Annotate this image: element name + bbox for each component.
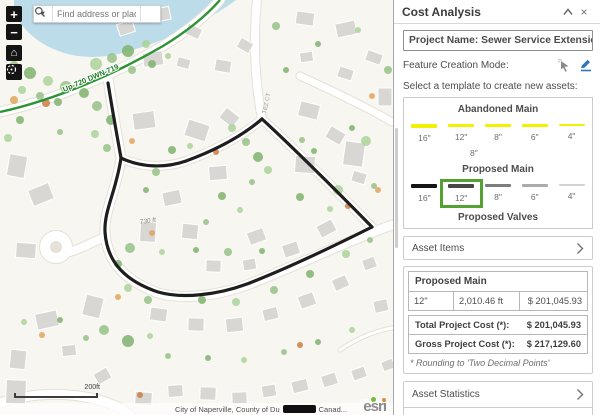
- total-project-cost-label: Total Project Cost (*):: [415, 320, 509, 330]
- building: [82, 294, 105, 319]
- tree: [149, 230, 155, 236]
- tree: [129, 138, 135, 144]
- building: [162, 189, 183, 206]
- gross-project-cost-label: Gross Project Cost (*):: [415, 339, 515, 349]
- tree: [375, 187, 381, 193]
- tree: [148, 60, 156, 68]
- tree: [79, 88, 89, 98]
- building: [297, 292, 316, 310]
- building: [209, 165, 228, 180]
- tree: [281, 349, 287, 355]
- building: [6, 154, 28, 179]
- attribution-bar: City of Naperville, County of Du Canad..…: [0, 403, 393, 415]
- building: [132, 111, 156, 131]
- building: [93, 367, 112, 385]
- attribution-redaction: [283, 405, 316, 413]
- tree: [92, 101, 102, 111]
- tree: [57, 317, 63, 323]
- tree: [205, 355, 211, 361]
- asset-statistics-section[interactable]: Asset Statistics: [404, 382, 592, 407]
- tree: [369, 93, 375, 99]
- building: [295, 11, 315, 26]
- building: [351, 366, 368, 381]
- tree: [10, 96, 18, 104]
- proposed-main-swatches: 16" 12" 8" 6" 4": [406, 182, 590, 205]
- tree: [311, 148, 317, 154]
- draw-mode-pencil-icon[interactable]: [579, 58, 593, 72]
- tree: [187, 143, 193, 149]
- cul-de-sac: [50, 241, 62, 253]
- tree: [137, 392, 143, 398]
- feature-creation-mode-label: Feature Creation Mode:: [403, 60, 557, 71]
- panel-header: Cost Analysis ×: [394, 0, 600, 24]
- template-abandoned-16[interactable]: 16": [406, 122, 443, 145]
- building: [168, 384, 184, 397]
- template-proposed-6[interactable]: 6": [516, 182, 553, 205]
- tree: [367, 237, 373, 243]
- gross-project-cost-row: Gross Project Cost (*): $ 217,129.60: [409, 334, 587, 353]
- building: [61, 344, 76, 356]
- cost-row-cost: $ 201,045.93: [519, 292, 587, 310]
- tree: [91, 130, 99, 138]
- tree: [327, 206, 333, 212]
- search-input[interactable]: [53, 6, 140, 22]
- tree: [315, 41, 321, 47]
- attribution-text-2: Canad...: [319, 405, 347, 414]
- tree: [16, 116, 24, 124]
- tree: [144, 296, 152, 304]
- tree: [147, 333, 153, 339]
- building: [362, 256, 378, 271]
- tree: [232, 298, 240, 306]
- tree: [128, 66, 136, 74]
- building: [325, 126, 346, 146]
- asset-items-label: Asset Items: [412, 243, 464, 254]
- proposed-main-group-title: Proposed Main: [406, 164, 590, 175]
- building: [299, 51, 313, 63]
- building: [378, 88, 392, 106]
- template-proposed-8[interactable]: 8": [480, 182, 517, 205]
- building: [28, 182, 55, 206]
- building: [342, 141, 365, 168]
- tree: [355, 27, 361, 33]
- zoom-in-button[interactable]: +: [6, 6, 22, 22]
- building: [9, 349, 27, 370]
- tree: [349, 125, 355, 131]
- tree: [115, 294, 121, 300]
- building: [184, 119, 210, 142]
- tree: [349, 327, 355, 333]
- chevron-right-icon: [576, 388, 584, 401]
- building: [188, 318, 204, 332]
- tree: [57, 129, 63, 135]
- tree: [143, 187, 149, 193]
- building: [281, 241, 300, 258]
- template-proposed-4[interactable]: 4": [553, 182, 590, 205]
- building: [242, 258, 257, 271]
- dock-icon[interactable]: [560, 4, 576, 20]
- cost-table-row: 12" 2,010.46 ft $ 201,045.93: [409, 292, 587, 310]
- tree: [342, 250, 350, 258]
- building: [16, 242, 37, 258]
- cost-row-size: 12": [409, 292, 453, 310]
- building: [351, 170, 367, 184]
- tree: [242, 138, 250, 146]
- building: [262, 306, 279, 321]
- asset-items-section[interactable]: Asset Items: [403, 236, 593, 260]
- building: [331, 274, 350, 291]
- building: [335, 20, 357, 38]
- building: [291, 378, 309, 394]
- building: [206, 260, 221, 273]
- tree: [237, 207, 243, 213]
- tree: [43, 76, 53, 86]
- proposed-valves-group-title: Proposed Valves: [406, 212, 590, 223]
- tree: [168, 146, 176, 154]
- building: [246, 227, 266, 245]
- building: [181, 223, 198, 240]
- panel-content: Project Name: Sewer Service Extension Fe…: [394, 24, 600, 415]
- tree: [306, 270, 314, 278]
- tree: [259, 248, 265, 254]
- tree: [122, 335, 134, 347]
- tree: [142, 40, 150, 48]
- building: [261, 384, 277, 398]
- cost-summary: Proposed Main 12" 2,010.46 ft $ 201,045.…: [403, 266, 593, 374]
- template-abandoned-extra[interactable]: 8": [406, 148, 590, 158]
- rounding-footnote: * Rounding to 'Two Decimal Points': [408, 354, 588, 369]
- tree: [361, 136, 371, 146]
- gross-project-cost-value: $ 217,129.60: [527, 339, 581, 349]
- home-button[interactable]: ⌂: [6, 45, 22, 61]
- tree: [228, 124, 236, 132]
- tree: [315, 339, 321, 345]
- tree: [83, 335, 89, 341]
- template-abandoned-4[interactable]: 4": [553, 122, 590, 145]
- building: [297, 101, 320, 120]
- tree: [18, 86, 26, 94]
- template-gallery: Abandoned Main 16" 12" 8" 6" 4" 8" Propo…: [403, 97, 593, 229]
- panel-scrollbar[interactable]: [395, 128, 398, 248]
- building: [365, 50, 384, 66]
- tree: [270, 286, 278, 294]
- building: [219, 107, 240, 128]
- building: [321, 372, 339, 388]
- building: [6, 380, 27, 405]
- tree: [264, 166, 272, 174]
- template-proposed-12-selected[interactable]: 12": [443, 182, 480, 205]
- tree: [203, 219, 209, 225]
- tree: [198, 296, 206, 304]
- tree: [122, 45, 134, 57]
- feature-creation-mode-row: Feature Creation Mode:: [403, 58, 593, 72]
- scale-bar: 200ft: [14, 393, 98, 398]
- app-window: Up-720 DWN-719730 ftTEZ CT ▼ + − ⌂ 200ft…: [0, 0, 600, 415]
- search-icon[interactable]: [140, 6, 160, 22]
- tree: [253, 152, 263, 162]
- template-abandoned-12[interactable]: 12": [443, 122, 480, 145]
- tree: [24, 67, 36, 79]
- template-abandoned-8[interactable]: 8": [480, 122, 517, 145]
- tree: [193, 247, 199, 253]
- tree: [297, 342, 303, 348]
- locate-icon[interactable]: [6, 64, 22, 80]
- total-project-cost-row: Total Project Cost (*): $ 201,045.93: [409, 316, 587, 334]
- building: [35, 310, 60, 330]
- tree: [165, 53, 171, 59]
- building: [225, 317, 243, 333]
- tree: [241, 357, 247, 363]
- cost-table: Proposed Main 12" 2,010.46 ft $ 201,045.…: [408, 271, 588, 311]
- panel-title: Cost Analysis: [402, 5, 560, 19]
- abandoned-main-group-title: Abandoned Main: [406, 104, 590, 115]
- abandoned-main-swatches: 16" 12" 8" 6" 4": [406, 122, 590, 145]
- tree: [165, 353, 171, 359]
- road: [255, 0, 262, 119]
- template-abandoned-6[interactable]: 6": [516, 122, 553, 145]
- building: [214, 59, 232, 74]
- map-basemap: Up-720 DWN-719730 ftTEZ CT: [0, 0, 393, 415]
- totals-table: Total Project Cost (*): $ 201,045.93 Gro…: [408, 315, 588, 354]
- building: [200, 387, 216, 401]
- building: [373, 299, 389, 314]
- map-canvas[interactable]: Up-720 DWN-719730 ftTEZ CT ▼ + − ⌂ 200ft…: [0, 0, 393, 415]
- close-icon[interactable]: ×: [576, 4, 592, 20]
- tree: [384, 66, 392, 74]
- building: [149, 307, 168, 322]
- tree: [249, 179, 255, 185]
- tree: [54, 98, 62, 106]
- tree: [152, 168, 160, 176]
- tree: [103, 144, 111, 152]
- chevron-right-icon: [576, 242, 584, 255]
- map-label: TEZ CT: [262, 92, 272, 114]
- building: [337, 66, 355, 81]
- tree: [272, 22, 280, 30]
- building: [381, 358, 393, 372]
- template-proposed-16[interactable]: 16": [406, 182, 443, 205]
- esri-globe-orange-dot: [382, 398, 386, 402]
- tree: [296, 193, 304, 201]
- tree: [159, 249, 165, 255]
- cost-row-length: 2,010.46 ft: [453, 292, 519, 310]
- esri-logo: esri: [360, 399, 389, 414]
- tree: [4, 134, 12, 142]
- asset-statistics-label: Asset Statistics: [412, 389, 480, 400]
- tree: [283, 67, 289, 73]
- attribution-text: City of Naperville, County of Du: [175, 405, 280, 414]
- tree: [39, 332, 45, 338]
- tree: [299, 137, 305, 143]
- tree: [36, 92, 44, 100]
- project-name: Project Name: Sewer Service Extension: [403, 30, 593, 51]
- secondary-sections: Asset Statistics Project Summary: [403, 381, 593, 415]
- tree: [224, 248, 232, 256]
- tree: [218, 192, 226, 200]
- search-bar: ▼: [33, 5, 161, 23]
- cost-analysis-panel: Cost Analysis × Project Name: Sewer Serv…: [393, 0, 600, 415]
- scale-bar-label: 200ft: [84, 384, 100, 391]
- template-prompt: Select a template to create new assets:: [403, 81, 593, 92]
- building: [176, 56, 191, 69]
- tree: [125, 243, 135, 253]
- building: [316, 219, 337, 238]
- tree: [99, 325, 109, 335]
- tree: [124, 284, 132, 292]
- tree: [21, 319, 27, 325]
- total-project-cost-value: $ 201,045.93: [527, 320, 581, 330]
- project-summary-section[interactable]: Project Summary: [404, 407, 592, 415]
- smart-mode-wand-icon[interactable]: [557, 58, 571, 72]
- cost-table-group-header: Proposed Main: [409, 272, 587, 292]
- zoom-out-button[interactable]: −: [6, 24, 22, 40]
